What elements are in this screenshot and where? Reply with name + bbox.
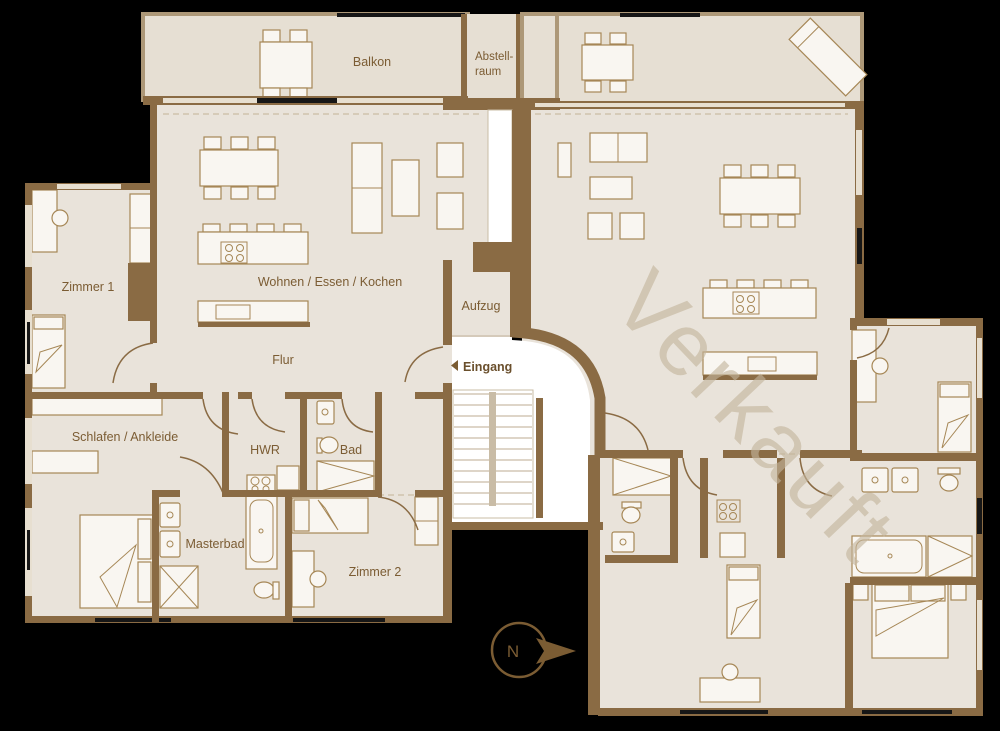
- label-hwr: HWR: [250, 443, 280, 457]
- label-flur: Flur: [272, 353, 294, 367]
- dining-table-left: [200, 137, 278, 199]
- compass-north-label: N: [507, 642, 519, 661]
- label-bad: Bad: [340, 443, 362, 457]
- label-masterbad: Masterbad: [185, 537, 244, 551]
- label-balkon: Balkon: [353, 55, 391, 69]
- label-wohnen-essen-kochen: Wohnen / Essen / Kochen: [258, 275, 402, 289]
- balcony-left: Balkon: [143, 13, 468, 100]
- storage-room-abstellraum: Abstell- raum: [461, 14, 522, 100]
- label-abstellraum-1: Abstell-: [475, 51, 514, 63]
- dining-table-right: [720, 165, 800, 227]
- label-aufzug: Aufzug: [462, 299, 501, 313]
- label-eingang: Eingang: [463, 360, 512, 374]
- label-abstellraum-2: raum: [475, 66, 501, 78]
- label-zimmer2: Zimmer 2: [349, 565, 402, 579]
- void: [452, 530, 588, 623]
- staircase: [453, 390, 543, 518]
- label-schlafen-ankleide: Schlafen / Ankleide: [72, 430, 178, 444]
- floorplan-drawing: Balkon Abstell- raum: [0, 0, 1000, 731]
- sideboard-left: [198, 301, 310, 327]
- label-zimmer1: Zimmer 1: [62, 280, 115, 294]
- floorplan-page: Balkon Abstell- raum: [0, 0, 1000, 731]
- balcony-right: [522, 13, 867, 105]
